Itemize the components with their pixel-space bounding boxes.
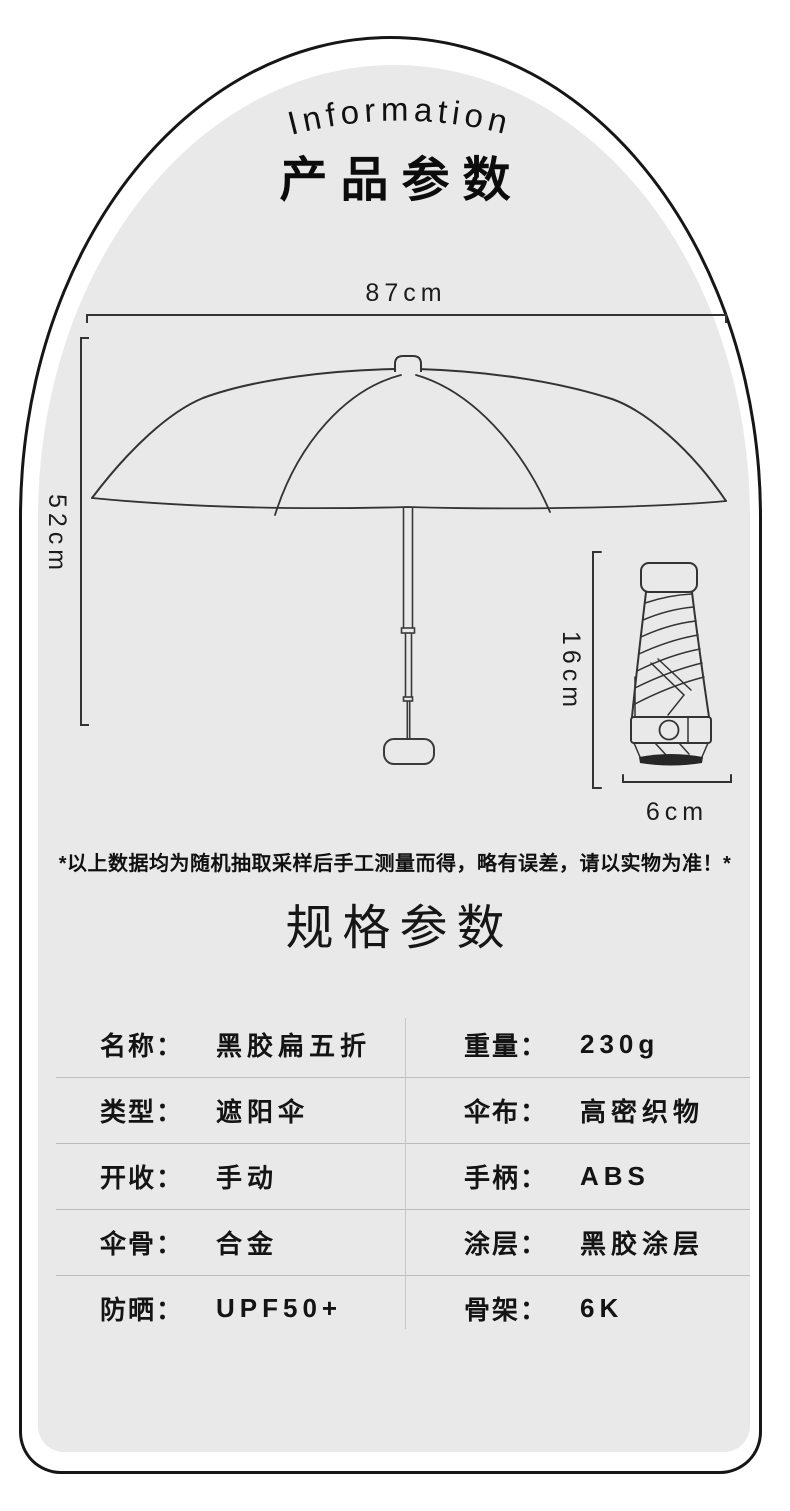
umbrella-shaft: [384, 507, 434, 764]
page-title-text: 产品参数: [279, 154, 523, 207]
spec-value: 6K: [580, 1293, 623, 1324]
strap-button: [660, 721, 679, 740]
svg-text:Information: Information: [284, 91, 516, 142]
specs-title-text: 规格参数: [285, 902, 513, 955]
spec-value: 遮阳伞: [216, 1092, 309, 1129]
canopy-width-label: 87cm: [306, 279, 506, 307]
spec-label: 类型：: [100, 1092, 216, 1129]
spec-label: 防晒：: [100, 1290, 216, 1327]
umbrella-handle: [384, 739, 434, 764]
spec-cell: 重量： 230g: [405, 1026, 750, 1063]
spec-row: 类型： 遮阳伞 伞布： 高密织物: [56, 1078, 750, 1144]
product-parameters-card: Information 产品参数 87cm 52cm: [0, 0, 790, 1511]
folded-height-dimension-line: [593, 552, 601, 788]
folded-width-label: 6cm: [617, 798, 737, 826]
folded-width-dimension-line: [623, 775, 731, 782]
umbrella-canopy: [92, 369, 726, 515]
spec-cell: 涂层： 黑胶涂层: [405, 1224, 750, 1261]
arc-subtitle-text: Information: [284, 91, 516, 142]
canopy-width-dimension-line: [86, 314, 727, 323]
folded-umbrella-body: [631, 563, 711, 766]
spec-label: 伞布：: [464, 1092, 580, 1129]
spec-label: 伞骨：: [100, 1224, 216, 1261]
measurement-note: *以上数据均为随机抽取采样后手工测量而得，略有误差，请以实物为准！*: [0, 851, 790, 877]
spec-cell: 开收： 手动: [56, 1158, 405, 1195]
canopy-height-label: 52cm: [43, 494, 71, 568]
specs-title: 规格参数: [0, 901, 790, 957]
spec-value: ABS: [580, 1161, 650, 1192]
spec-cell: 防晒： UPF50+: [56, 1290, 405, 1327]
spec-value: 黑胶涂层: [580, 1224, 704, 1261]
spec-cell: 伞骨： 合金: [56, 1224, 405, 1261]
spec-row: 名称： 黑胶扁五折 重量： 230g: [56, 1012, 750, 1078]
bottom-cap: [639, 754, 703, 766]
spec-row: 开收： 手动 手柄： ABS: [56, 1144, 750, 1210]
spec-label: 涂层：: [464, 1224, 580, 1261]
spec-value: 黑胶扁五折: [216, 1026, 371, 1063]
spec-value: UPF50+: [216, 1293, 342, 1324]
spec-label: 手柄：: [464, 1158, 580, 1195]
spec-row: 伞骨： 合金 涂层： 黑胶涂层: [56, 1210, 750, 1276]
spec-cell: 伞布： 高密织物: [405, 1092, 750, 1129]
spec-label: 骨架：: [464, 1290, 580, 1327]
table-vertical-divider: [405, 1018, 406, 1329]
spec-row: 防晒： UPF50+ 骨架： 6K: [56, 1276, 750, 1341]
spec-cell: 名称： 黑胶扁五折: [56, 1026, 405, 1063]
spec-cell: 手柄： ABS: [405, 1158, 750, 1195]
spec-label: 重量：: [464, 1026, 580, 1063]
spec-value: 手动: [216, 1158, 278, 1195]
spec-cell: 骨架： 6K: [405, 1290, 750, 1327]
folded-height-label: 16cm: [557, 631, 585, 709]
umbrella-ferrule: [395, 356, 421, 372]
folded-umbrella-drawing: [555, 545, 755, 835]
spec-value: 230g: [580, 1029, 659, 1060]
spec-table: 名称： 黑胶扁五折 重量： 230g 类型： 遮阳伞 伞布： 高密织物 开收： …: [56, 1012, 750, 1341]
spec-value: 高密织物: [580, 1092, 704, 1129]
spec-label: 名称：: [100, 1026, 216, 1063]
spec-value: 合金: [216, 1224, 278, 1261]
spec-label: 开收：: [100, 1158, 216, 1195]
page-title: 产品参数: [0, 152, 790, 210]
spec-cell: 类型： 遮阳伞: [56, 1092, 405, 1129]
